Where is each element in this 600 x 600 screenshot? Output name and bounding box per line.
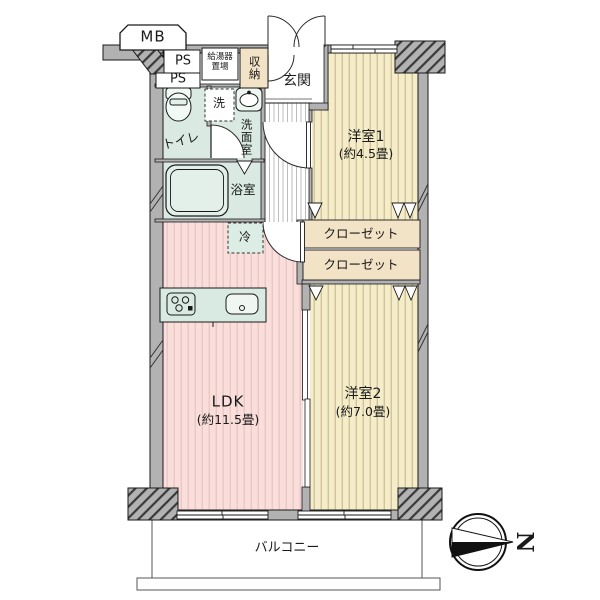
bedroom2-size: (約7.0畳): [336, 405, 391, 419]
storage-label: 収納: [247, 56, 260, 81]
bedroom2-name: 洋室2: [345, 386, 382, 402]
window-bedroom2-balcony: [298, 511, 391, 519]
ldk-size: (約11.5畳): [197, 413, 260, 427]
bathroom-label: 浴室: [230, 183, 255, 197]
bedroom1-size: (約4.5畳): [339, 147, 394, 161]
toilet-icon: [166, 88, 191, 121]
entrance-label: 玄関: [283, 73, 311, 89]
ldk-floor: [162, 222, 303, 512]
ldk-name: LDK: [212, 393, 245, 410]
ps-label-top: PS: [175, 55, 191, 70]
sliding-door: [303, 310, 311, 487]
kitchen-sink-icon: [226, 294, 258, 314]
floor-plan: MB PS PS 給湯器 置場 収納 玄関 トイレ 洗 洗面室 浴室 冷 洋室1…: [0, 0, 600, 600]
closet2-label: クローゼット: [323, 258, 398, 272]
compass-north-icon: [450, 514, 513, 570]
kitchen-counter: [160, 288, 266, 327]
window-bedroom1-top: [331, 45, 397, 53]
closet1-label: クローゼット: [323, 227, 398, 241]
washer-space-label: 洗: [213, 97, 225, 111]
ps-label-bottom: PS: [170, 73, 186, 88]
north-label: N: [511, 531, 537, 552]
mb-label: MB: [140, 28, 165, 45]
bathtub-icon: [166, 165, 228, 216]
bedroom1-name: 洋室1: [348, 129, 385, 145]
washbasin-icon: [236, 88, 262, 111]
entrance-door-swing: [268, 16, 325, 47]
balcony-label: バルコニー: [255, 542, 320, 557]
refrigerator-label: 冷: [239, 231, 251, 245]
washroom-label: 洗面室: [239, 118, 252, 156]
window-ldk-balcony: [177, 511, 268, 519]
water-heater-label: 給湯器 置場: [207, 53, 233, 73]
floor-plan-graphics: [0, 0, 600, 600]
water-heater-line2: 置場: [211, 63, 228, 73]
